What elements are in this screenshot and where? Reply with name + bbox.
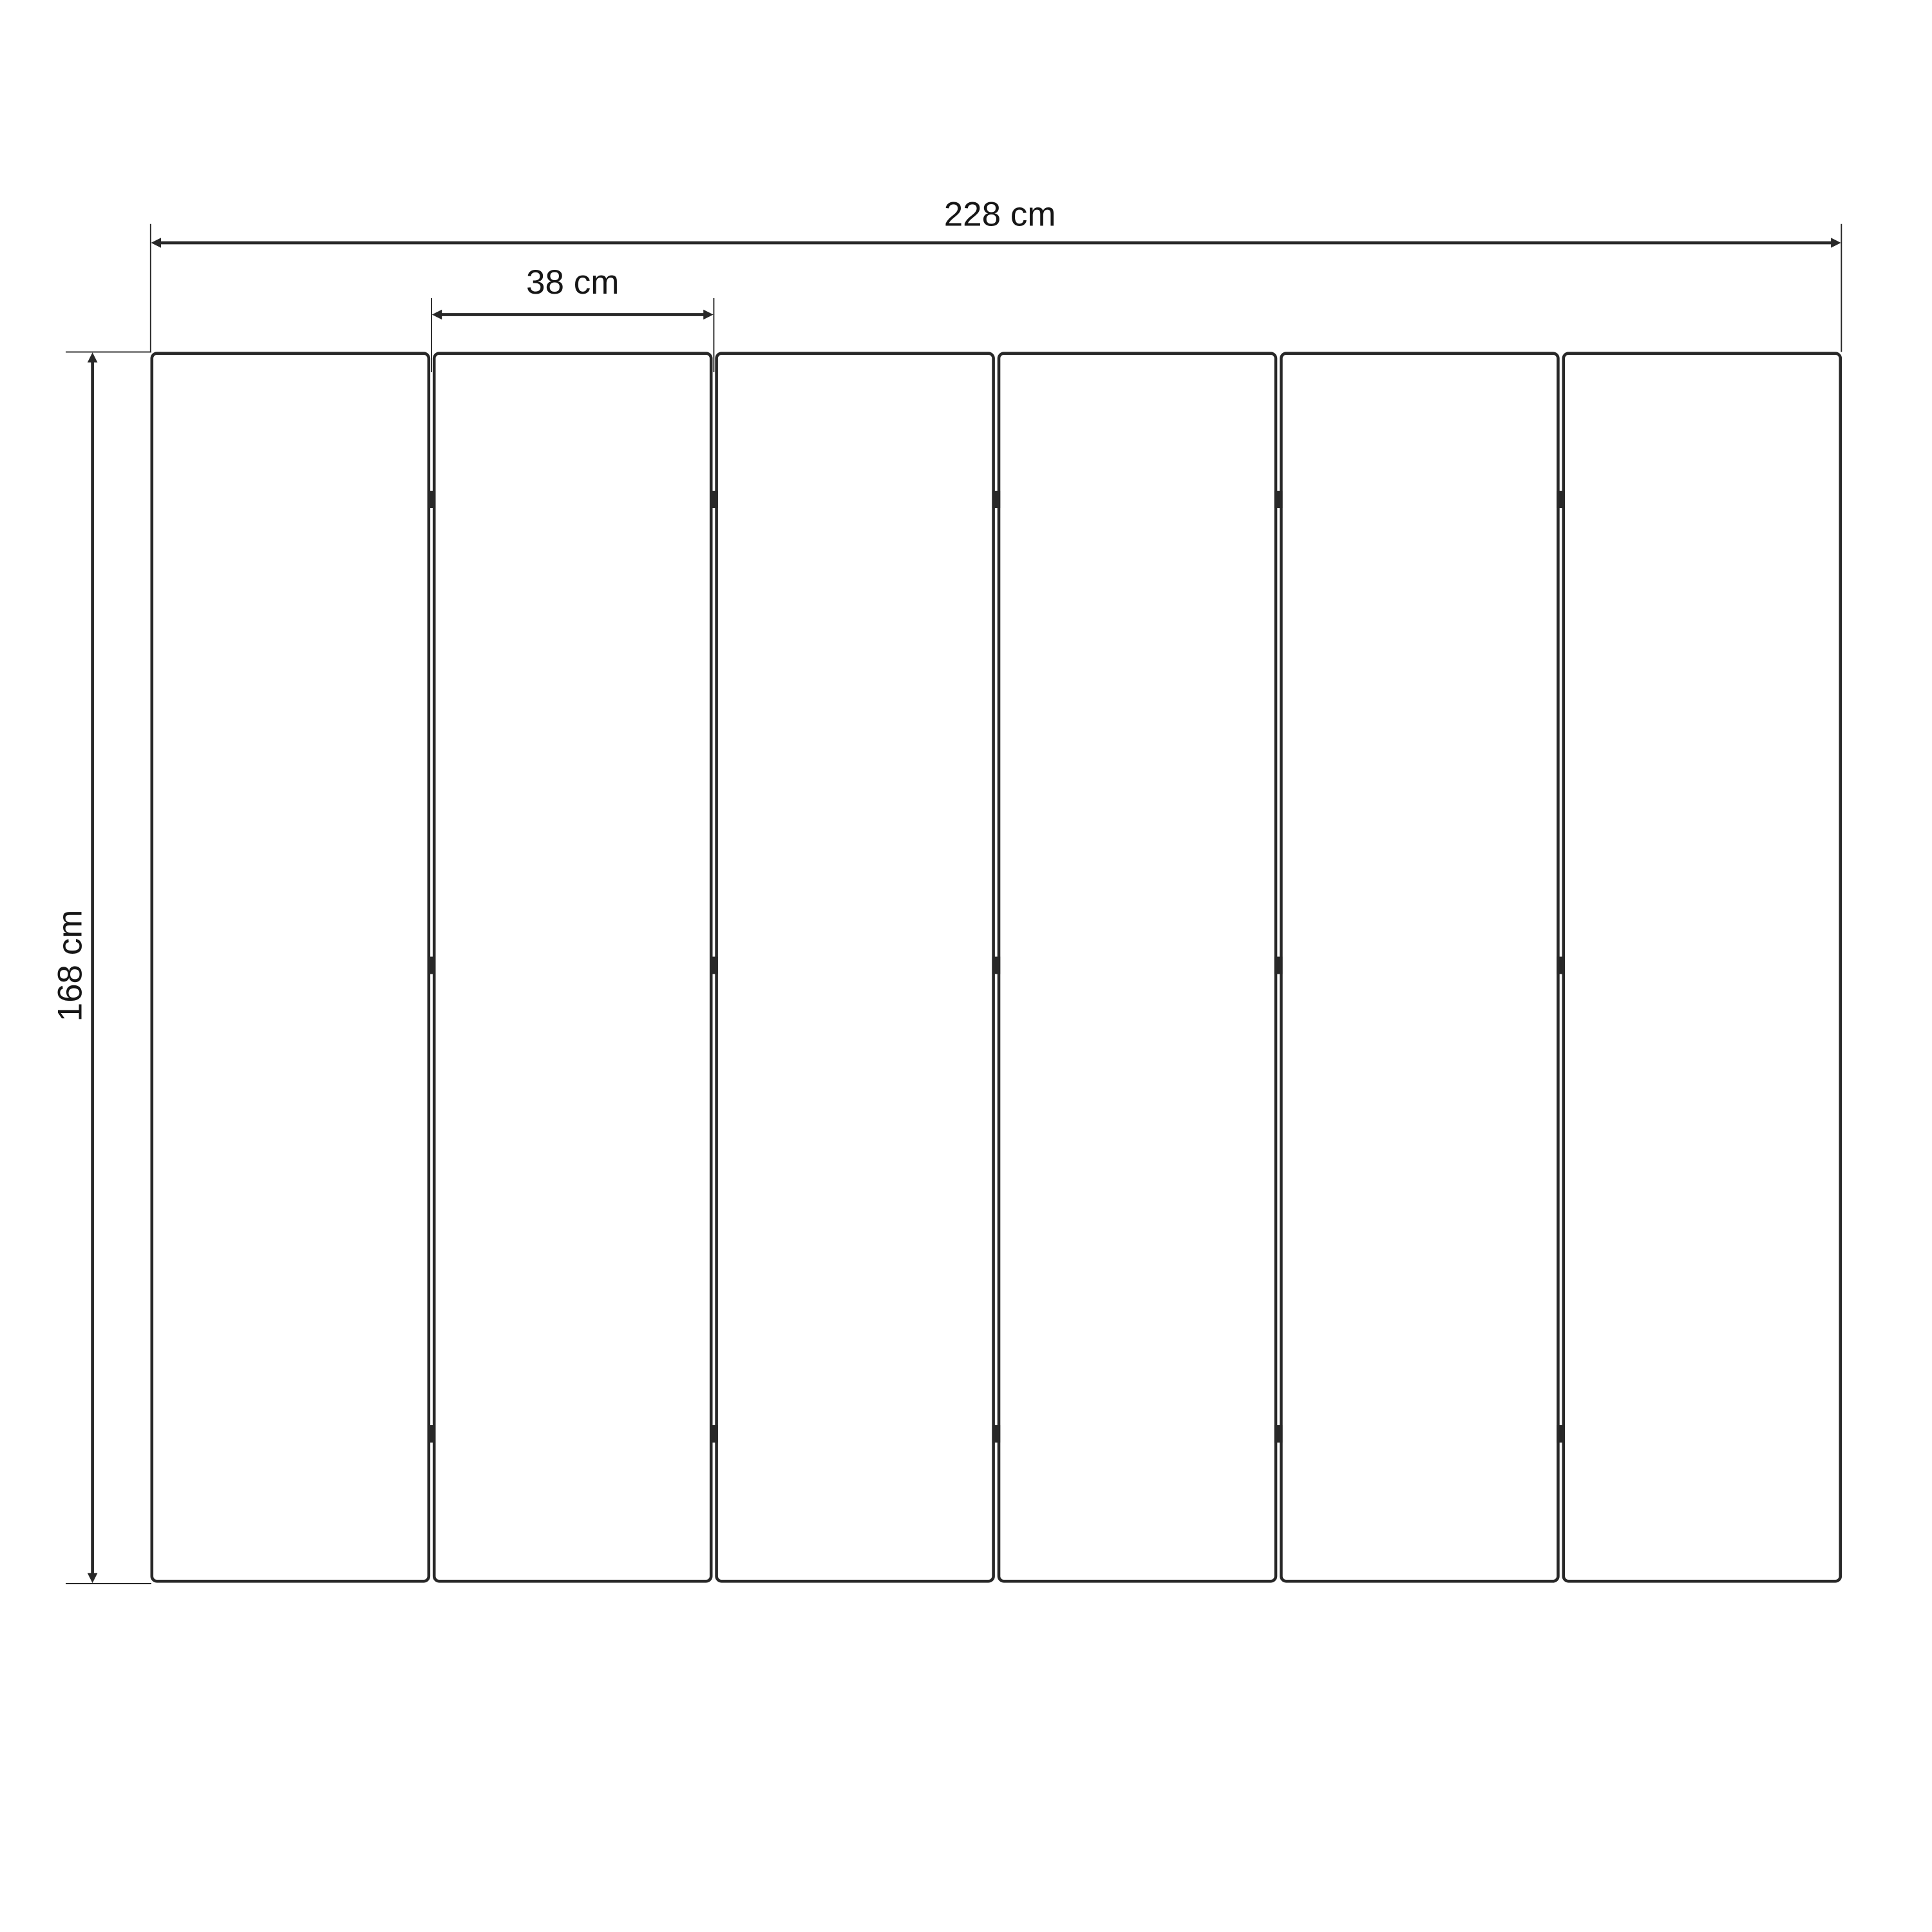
svg-text:38 cm: 38 cm	[526, 263, 619, 301]
svg-text:168 cm: 168 cm	[52, 910, 90, 1022]
svg-text:228 cm: 228 cm	[944, 196, 1056, 234]
